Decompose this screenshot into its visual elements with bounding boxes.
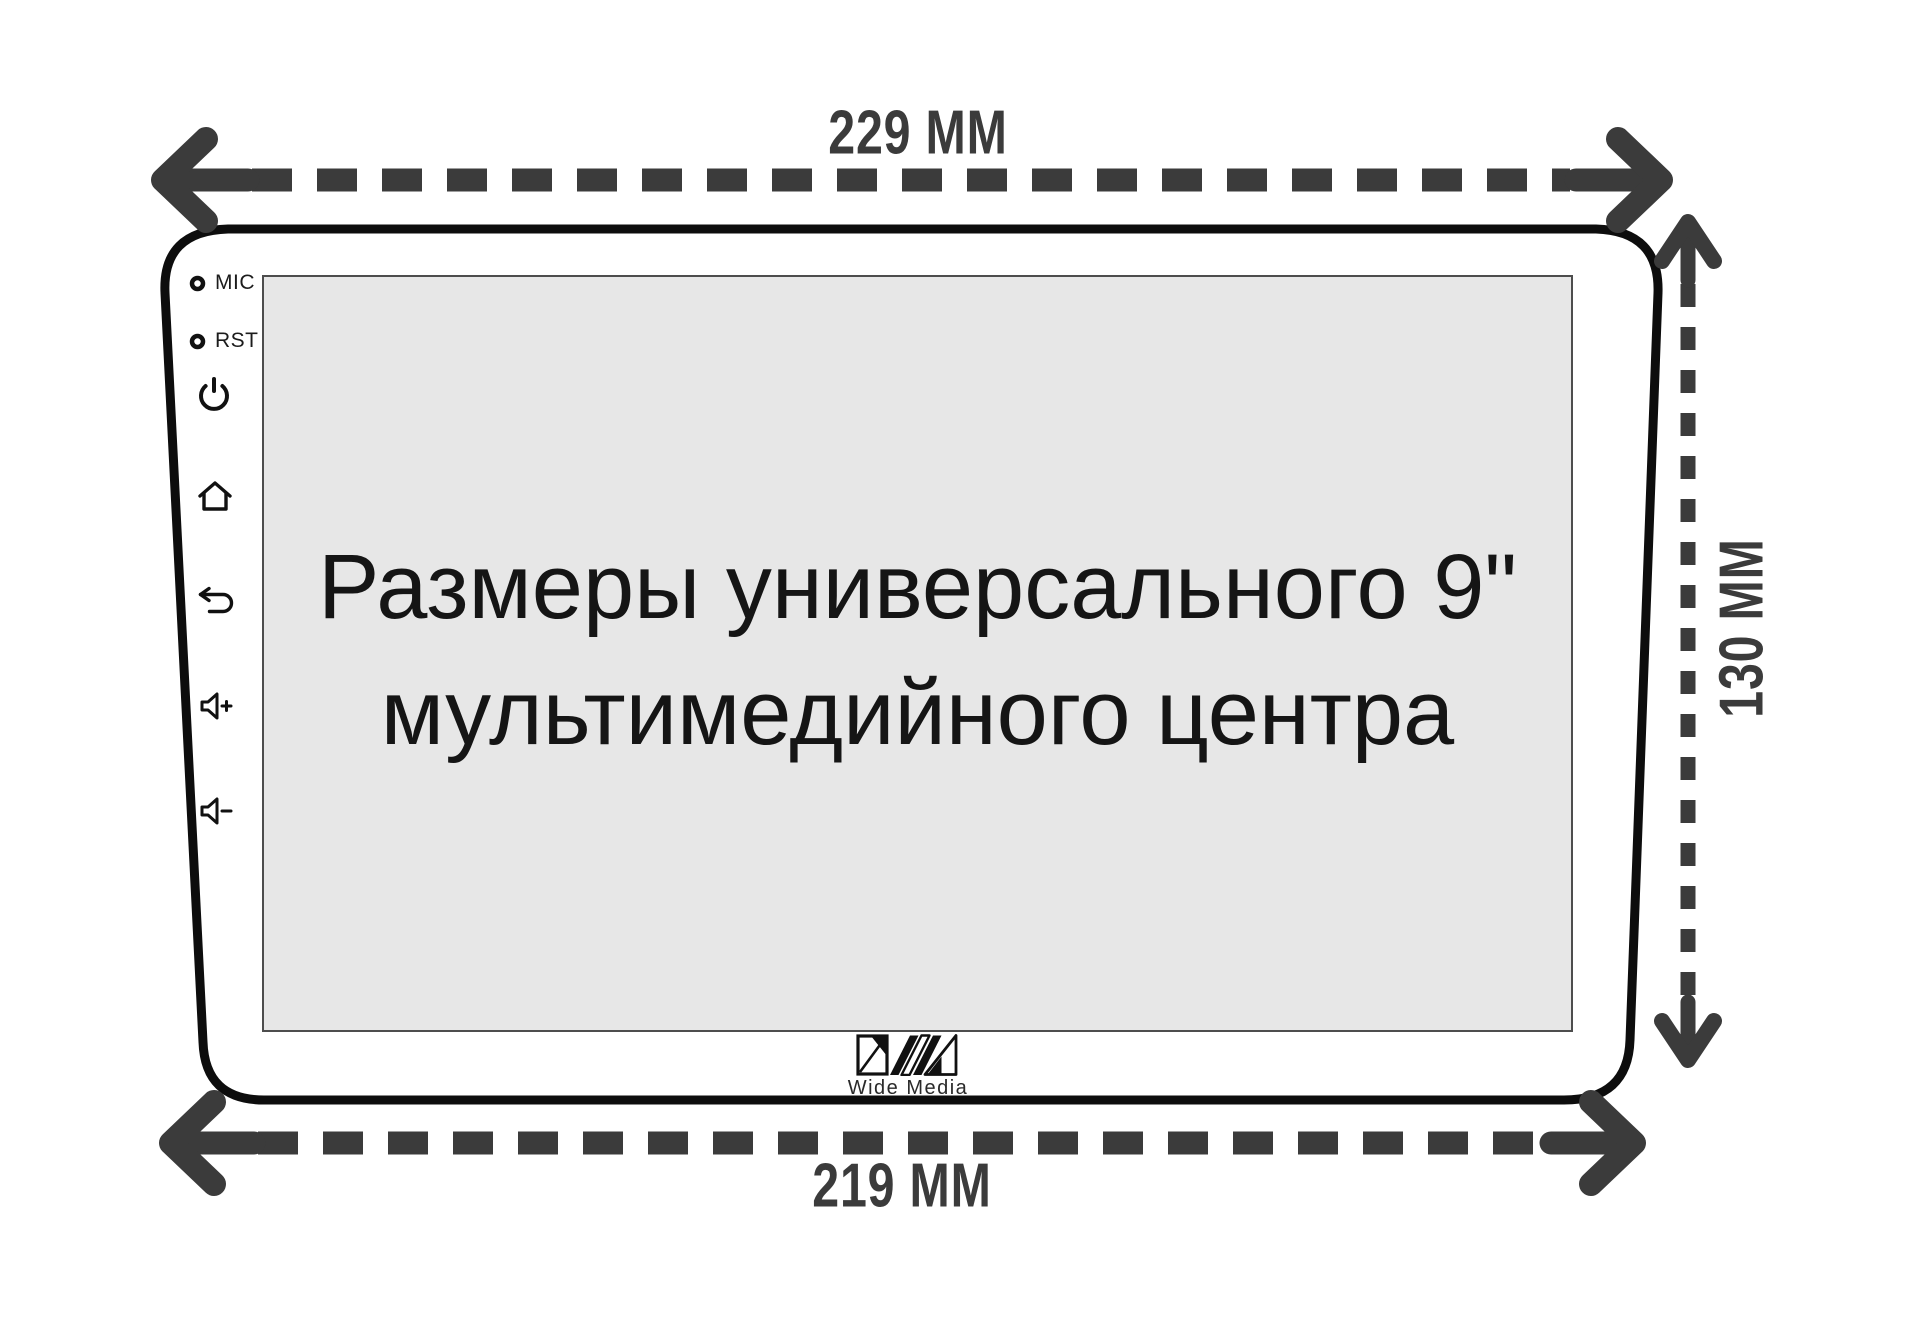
dimension-diagram: Размеры универсального 9" мультимедийног… xyxy=(0,0,1920,1318)
brand-logo: Wide Media xyxy=(852,1034,964,1100)
mic-port: MIC xyxy=(189,271,255,295)
mic-label: MIC xyxy=(215,271,255,295)
back-icon xyxy=(196,585,234,615)
reset-hole-icon xyxy=(189,333,206,350)
rst-label: RST xyxy=(215,329,259,353)
volume-down-icon xyxy=(197,792,235,830)
back-button xyxy=(196,585,234,615)
home-button xyxy=(196,479,234,514)
volume-down-button xyxy=(197,792,235,830)
right-dimension-arrow xyxy=(0,0,1920,1318)
brand-logo-text: Wide Media xyxy=(848,1077,969,1100)
home-icon xyxy=(196,479,234,514)
power-icon xyxy=(196,376,232,412)
volume-up-button xyxy=(197,687,235,725)
right-dimension-label: 130 MM xyxy=(1707,538,1778,717)
wide-media-logo-icon xyxy=(856,1034,960,1076)
mic-hole-icon xyxy=(189,275,206,292)
power-button xyxy=(196,376,232,412)
reset-port: RST xyxy=(189,329,259,353)
volume-up-icon xyxy=(197,687,235,725)
